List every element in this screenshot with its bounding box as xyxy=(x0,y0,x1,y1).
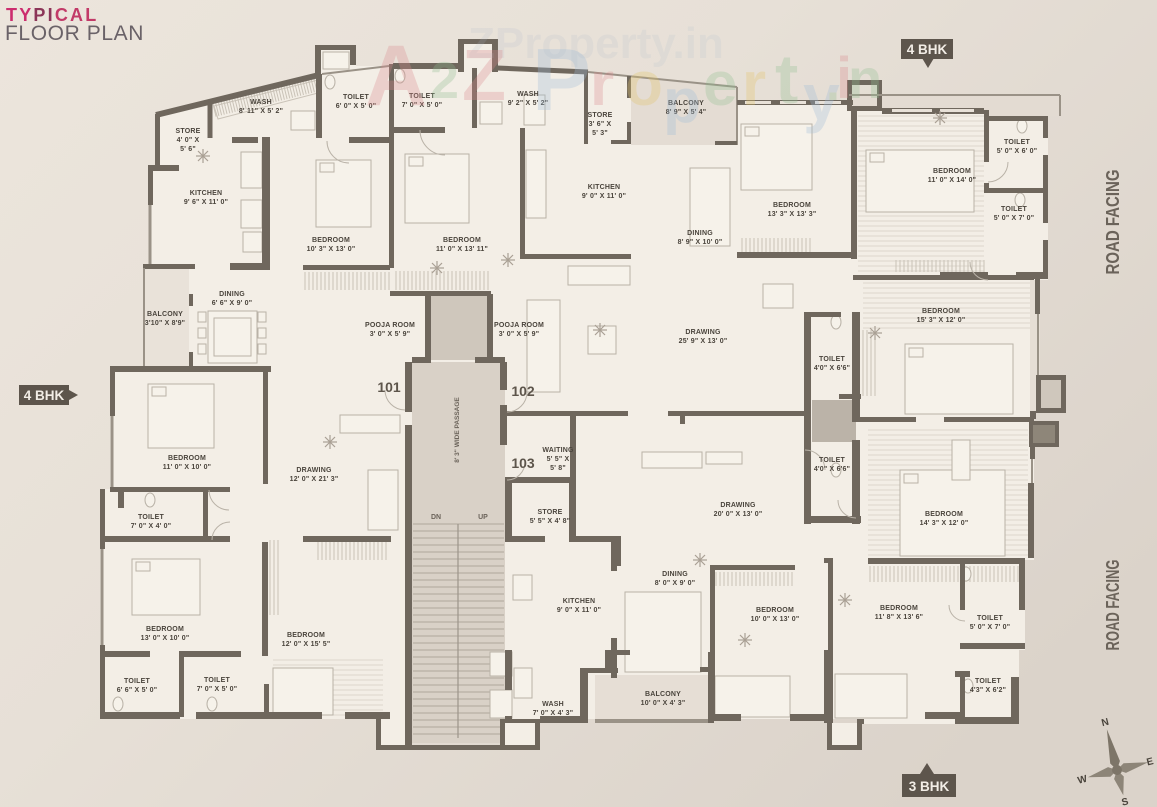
svg-text:101: 101 xyxy=(377,379,401,395)
svg-text:o: o xyxy=(625,50,663,119)
svg-text:8' 3" WIDE PASSAGE: 8' 3" WIDE PASSAGE xyxy=(454,397,461,463)
svg-text:103: 103 xyxy=(511,455,535,471)
svg-text:DN: DN xyxy=(431,514,441,521)
svg-text:UP: UP xyxy=(478,514,488,521)
svg-text:ROAD FACING: ROAD FACING xyxy=(1103,170,1123,275)
svg-text:e: e xyxy=(703,50,737,119)
svg-text:t: t xyxy=(775,40,798,118)
svg-text:FLOOR PLAN: FLOOR PLAN xyxy=(5,22,144,45)
svg-text:P: P xyxy=(532,30,591,129)
svg-text:2: 2 xyxy=(430,52,459,110)
svg-text:n: n xyxy=(848,47,882,110)
svg-text:102: 102 xyxy=(511,383,535,399)
svg-text:Z: Z xyxy=(462,36,506,116)
svg-text:ROAD FACING: ROAD FACING xyxy=(1103,560,1123,651)
svg-text:4 BHK: 4 BHK xyxy=(24,388,65,403)
svg-text:A: A xyxy=(365,28,427,124)
svg-text:4 BHK: 4 BHK xyxy=(907,42,948,57)
svg-text:3 BHK: 3 BHK xyxy=(909,779,950,794)
svg-text:r: r xyxy=(590,50,614,119)
svg-text:r: r xyxy=(742,50,766,119)
svg-text:p: p xyxy=(663,67,701,136)
